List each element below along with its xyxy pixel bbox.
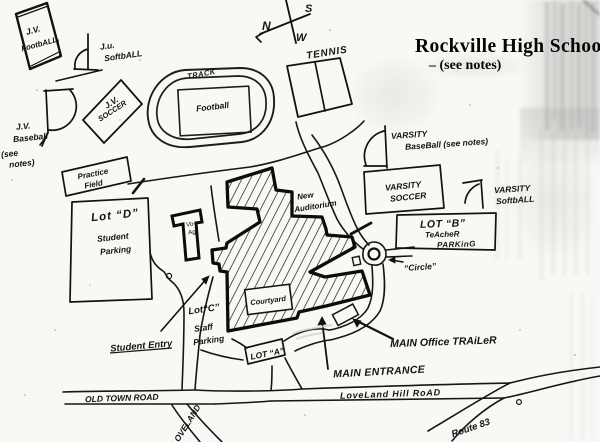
svg-text:N: N: [262, 19, 271, 33]
svg-text:Vo-: Vo-: [186, 220, 196, 228]
svg-text:W: W: [296, 32, 308, 44]
svg-text:S: S: [305, 3, 313, 15]
svg-text:TeAcheR: TeAcheR: [425, 229, 460, 239]
svg-text:PARKinG: PARKinG: [437, 239, 476, 249]
svg-text:J.u.: J.u.: [99, 40, 115, 52]
svg-text:Ag: Ag: [188, 228, 197, 236]
svg-text:Rockville High School: Rockville High School: [415, 36, 600, 57]
svg-text:J.V.: J.V.: [15, 120, 30, 131]
svg-text:– (see notes): – (see notes): [428, 58, 502, 73]
svg-text:(see: (see: [1, 148, 19, 160]
